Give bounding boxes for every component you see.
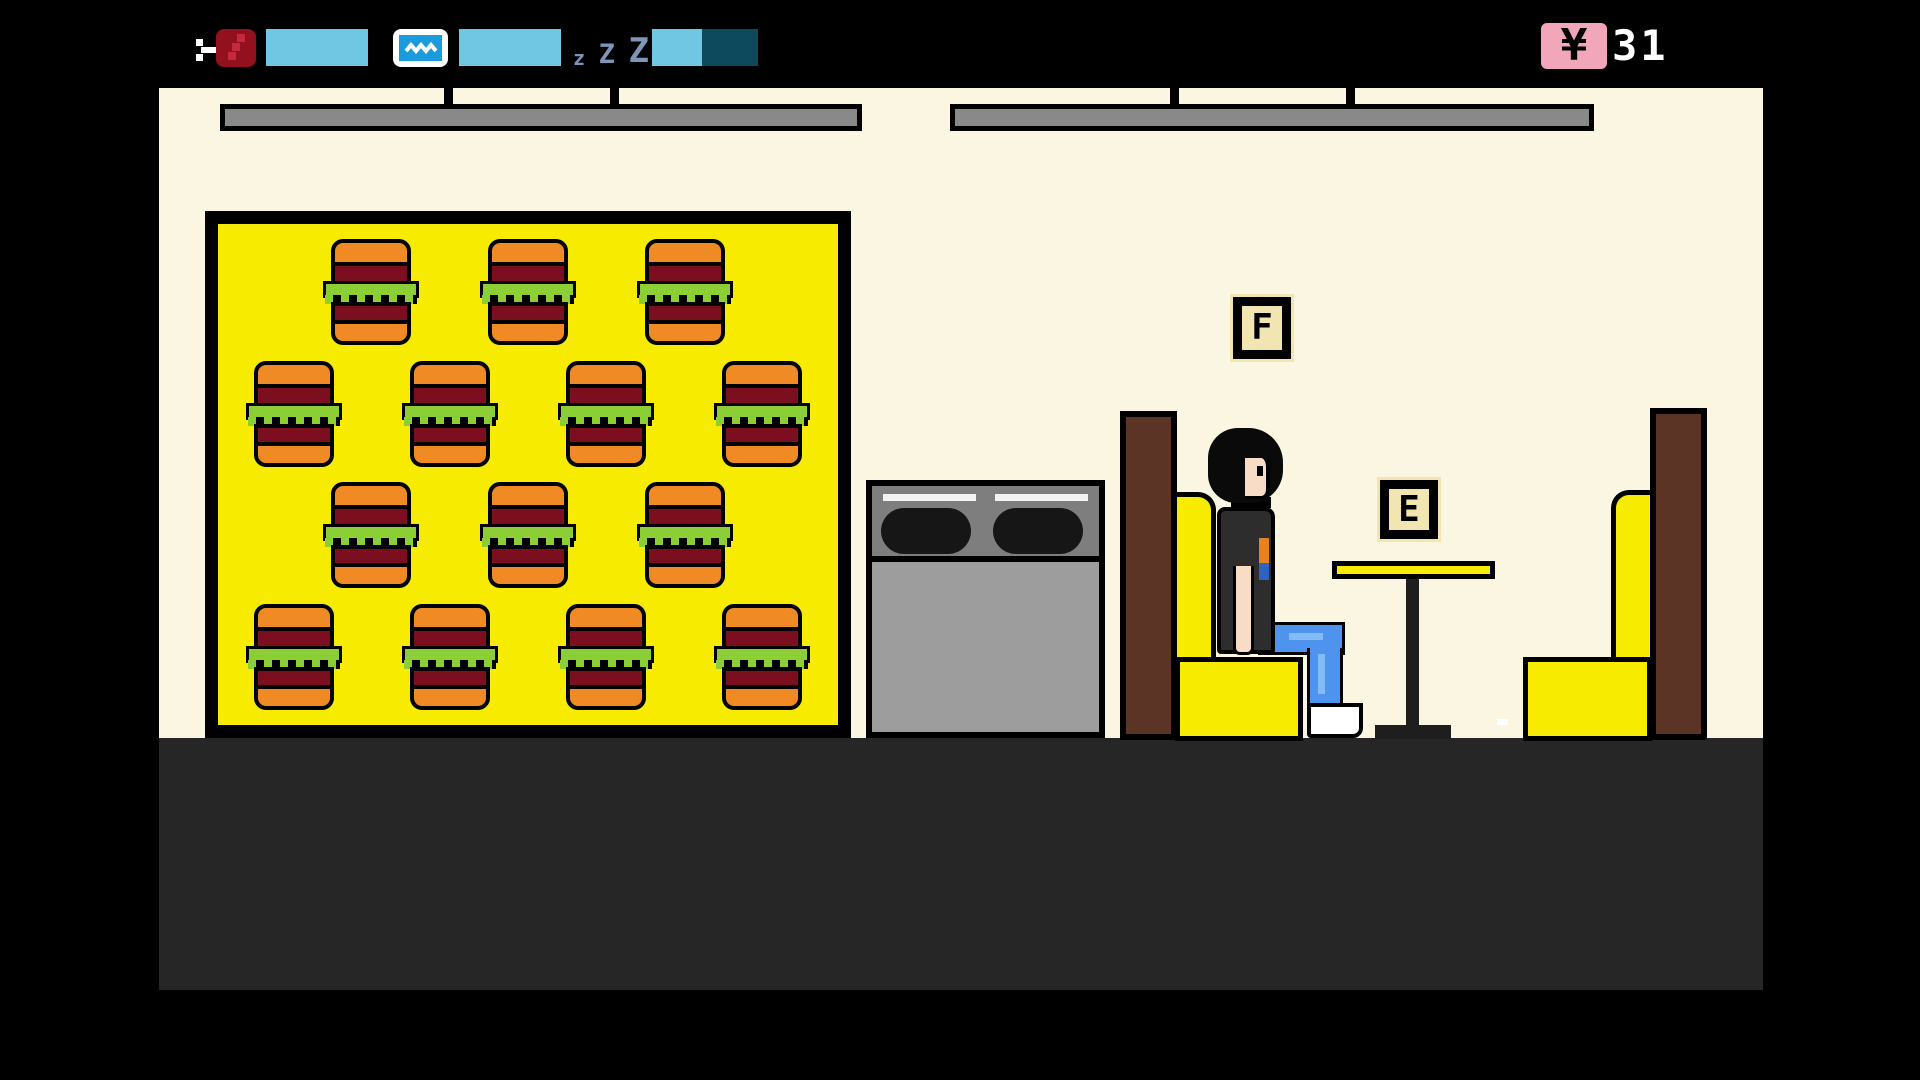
light-rod <box>610 88 619 105</box>
burger-icon <box>402 604 498 710</box>
burger-row <box>218 604 838 710</box>
burger-icon <box>402 361 498 467</box>
burger-bun-bottom <box>488 563 568 588</box>
character-shirt-patch-blue <box>1259 563 1269 580</box>
jeans-highlight <box>1289 633 1323 640</box>
burger-icon <box>480 239 576 345</box>
booth-seat[interactable] <box>1523 657 1652 741</box>
burger-bun-bottom <box>254 442 334 467</box>
burger-bun-bottom <box>331 320 411 345</box>
burger-icon <box>637 482 733 588</box>
table-top[interactable] <box>1332 561 1495 579</box>
burger-bun-bottom <box>645 563 725 588</box>
stove-highlight <box>995 494 1088 501</box>
character-shirt-patch-orange <box>1259 538 1269 563</box>
hunger-meter-bar <box>266 29 368 66</box>
stove-burner <box>993 508 1083 554</box>
zigzag-wave-icon <box>404 41 438 55</box>
burger-icon <box>246 604 342 710</box>
burger-row <box>218 361 838 467</box>
stove-highlight <box>883 494 976 501</box>
character-jeans-leg <box>1307 648 1343 708</box>
meat-dot <box>232 43 240 51</box>
burger-icon <box>558 361 654 467</box>
money-amount: 31 <box>1612 26 1669 66</box>
burger-bun-bottom <box>722 442 802 467</box>
fork-shaft <box>201 47 216 53</box>
zzz-icon: z Z Z <box>573 30 649 67</box>
booth-divider <box>1650 408 1707 740</box>
zzz-letter: Z <box>599 43 615 67</box>
burger-row <box>218 239 838 345</box>
character-shoe <box>1307 703 1363 738</box>
zzz-letter: z <box>573 49 585 67</box>
yen-symbol: ¥ <box>1561 24 1588 68</box>
burger-bun-bottom <box>331 563 411 588</box>
character-eye <box>1257 466 1263 476</box>
tv-screen <box>399 35 442 61</box>
burger-icon <box>480 482 576 588</box>
stove[interactable] <box>866 480 1105 738</box>
booth-backrest <box>1611 490 1652 665</box>
burger-bun-bottom <box>488 320 568 345</box>
booth-backrest <box>1173 492 1216 665</box>
burger-bun-bottom <box>566 685 646 710</box>
table-base <box>1375 725 1451 739</box>
burger-bun-bottom <box>254 685 334 710</box>
meat-dot <box>228 52 236 60</box>
light-rod <box>1170 88 1179 105</box>
floor <box>159 738 1763 990</box>
burger-icon <box>558 604 654 710</box>
burger-bun-bottom <box>410 685 490 710</box>
light-rod <box>1346 88 1355 105</box>
menu-board <box>205 211 851 738</box>
zzz-letter: Z <box>629 36 649 67</box>
cooktop <box>872 486 1099 562</box>
booth-seat[interactable] <box>1175 657 1303 741</box>
wall-detail <box>1497 719 1508 725</box>
burger-icon <box>714 361 810 467</box>
restaurant-scene: F E <box>159 88 1763 990</box>
burger-icon <box>323 482 419 588</box>
meat-icon <box>216 29 256 67</box>
sleep-meter-bar <box>652 29 758 66</box>
fork-tine <box>196 54 203 61</box>
key-prompt-e[interactable]: E <box>1380 480 1438 539</box>
ceiling-light <box>950 104 1594 131</box>
fork-tine <box>196 39 203 46</box>
key-prompt-f[interactable]: F <box>1233 297 1291 359</box>
table-pedestal <box>1406 579 1419 728</box>
tv-icon <box>393 29 448 67</box>
ceiling-light <box>220 104 862 131</box>
burger-icon <box>323 239 419 345</box>
light-rod <box>444 88 453 105</box>
burger-bun-bottom <box>410 442 490 467</box>
character-face <box>1245 458 1270 499</box>
burger-bun-bottom <box>722 685 802 710</box>
fun-meter-bar <box>459 29 561 66</box>
fork-icon <box>196 36 218 64</box>
jeans-highlight <box>1318 654 1325 694</box>
burger-icon <box>637 239 733 345</box>
burger-bun-bottom <box>645 320 725 345</box>
booth-divider <box>1120 411 1177 740</box>
burger-bun-bottom <box>566 442 646 467</box>
stove-burner <box>881 508 971 554</box>
game-stage: z Z Z ¥ 31 <box>0 0 1920 1080</box>
character-arm <box>1233 566 1254 655</box>
burger-icon <box>714 604 810 710</box>
meat-dot <box>237 34 245 42</box>
yen-money-icon: ¥ <box>1541 23 1607 69</box>
key-prompt-e-label: E <box>1398 492 1420 528</box>
burger-icon <box>246 361 342 467</box>
burger-row <box>218 482 838 588</box>
key-prompt-f-label: F <box>1251 310 1273 346</box>
